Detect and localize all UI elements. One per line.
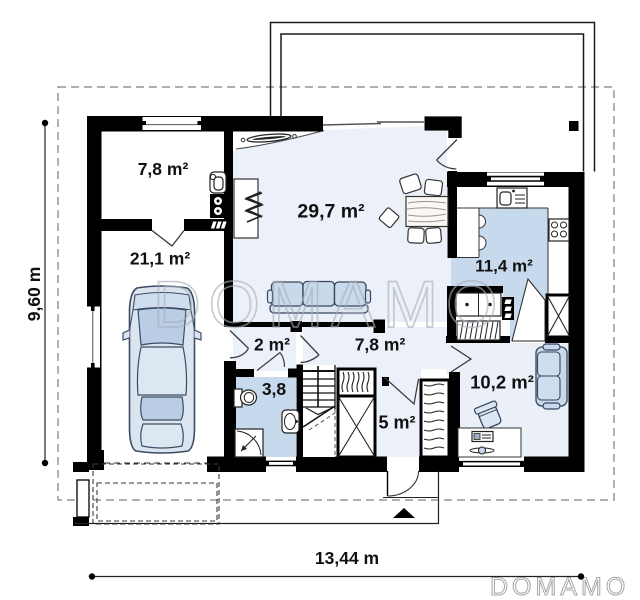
- svg-text:7,8 m²: 7,8 m²: [138, 159, 189, 179]
- svg-text:21,1 m²: 21,1 m²: [130, 249, 190, 269]
- svg-text:5 m²: 5 m²: [378, 413, 415, 433]
- svg-text:DOMAMO: DOMAMO: [153, 267, 505, 341]
- svg-text:13,44 m: 13,44 m: [315, 548, 379, 568]
- svg-text:2 m²: 2 m²: [254, 335, 290, 355]
- svg-text:9,60 m: 9,60 m: [24, 267, 44, 321]
- svg-text:11,4 m²: 11,4 m²: [475, 257, 533, 276]
- svg-text:29,7 m²: 29,7 m²: [297, 201, 365, 223]
- svg-text:7,8 m²: 7,8 m²: [355, 335, 406, 355]
- svg-text:10,2 m²: 10,2 m²: [470, 372, 534, 393]
- svg-text:3,8: 3,8: [262, 379, 287, 399]
